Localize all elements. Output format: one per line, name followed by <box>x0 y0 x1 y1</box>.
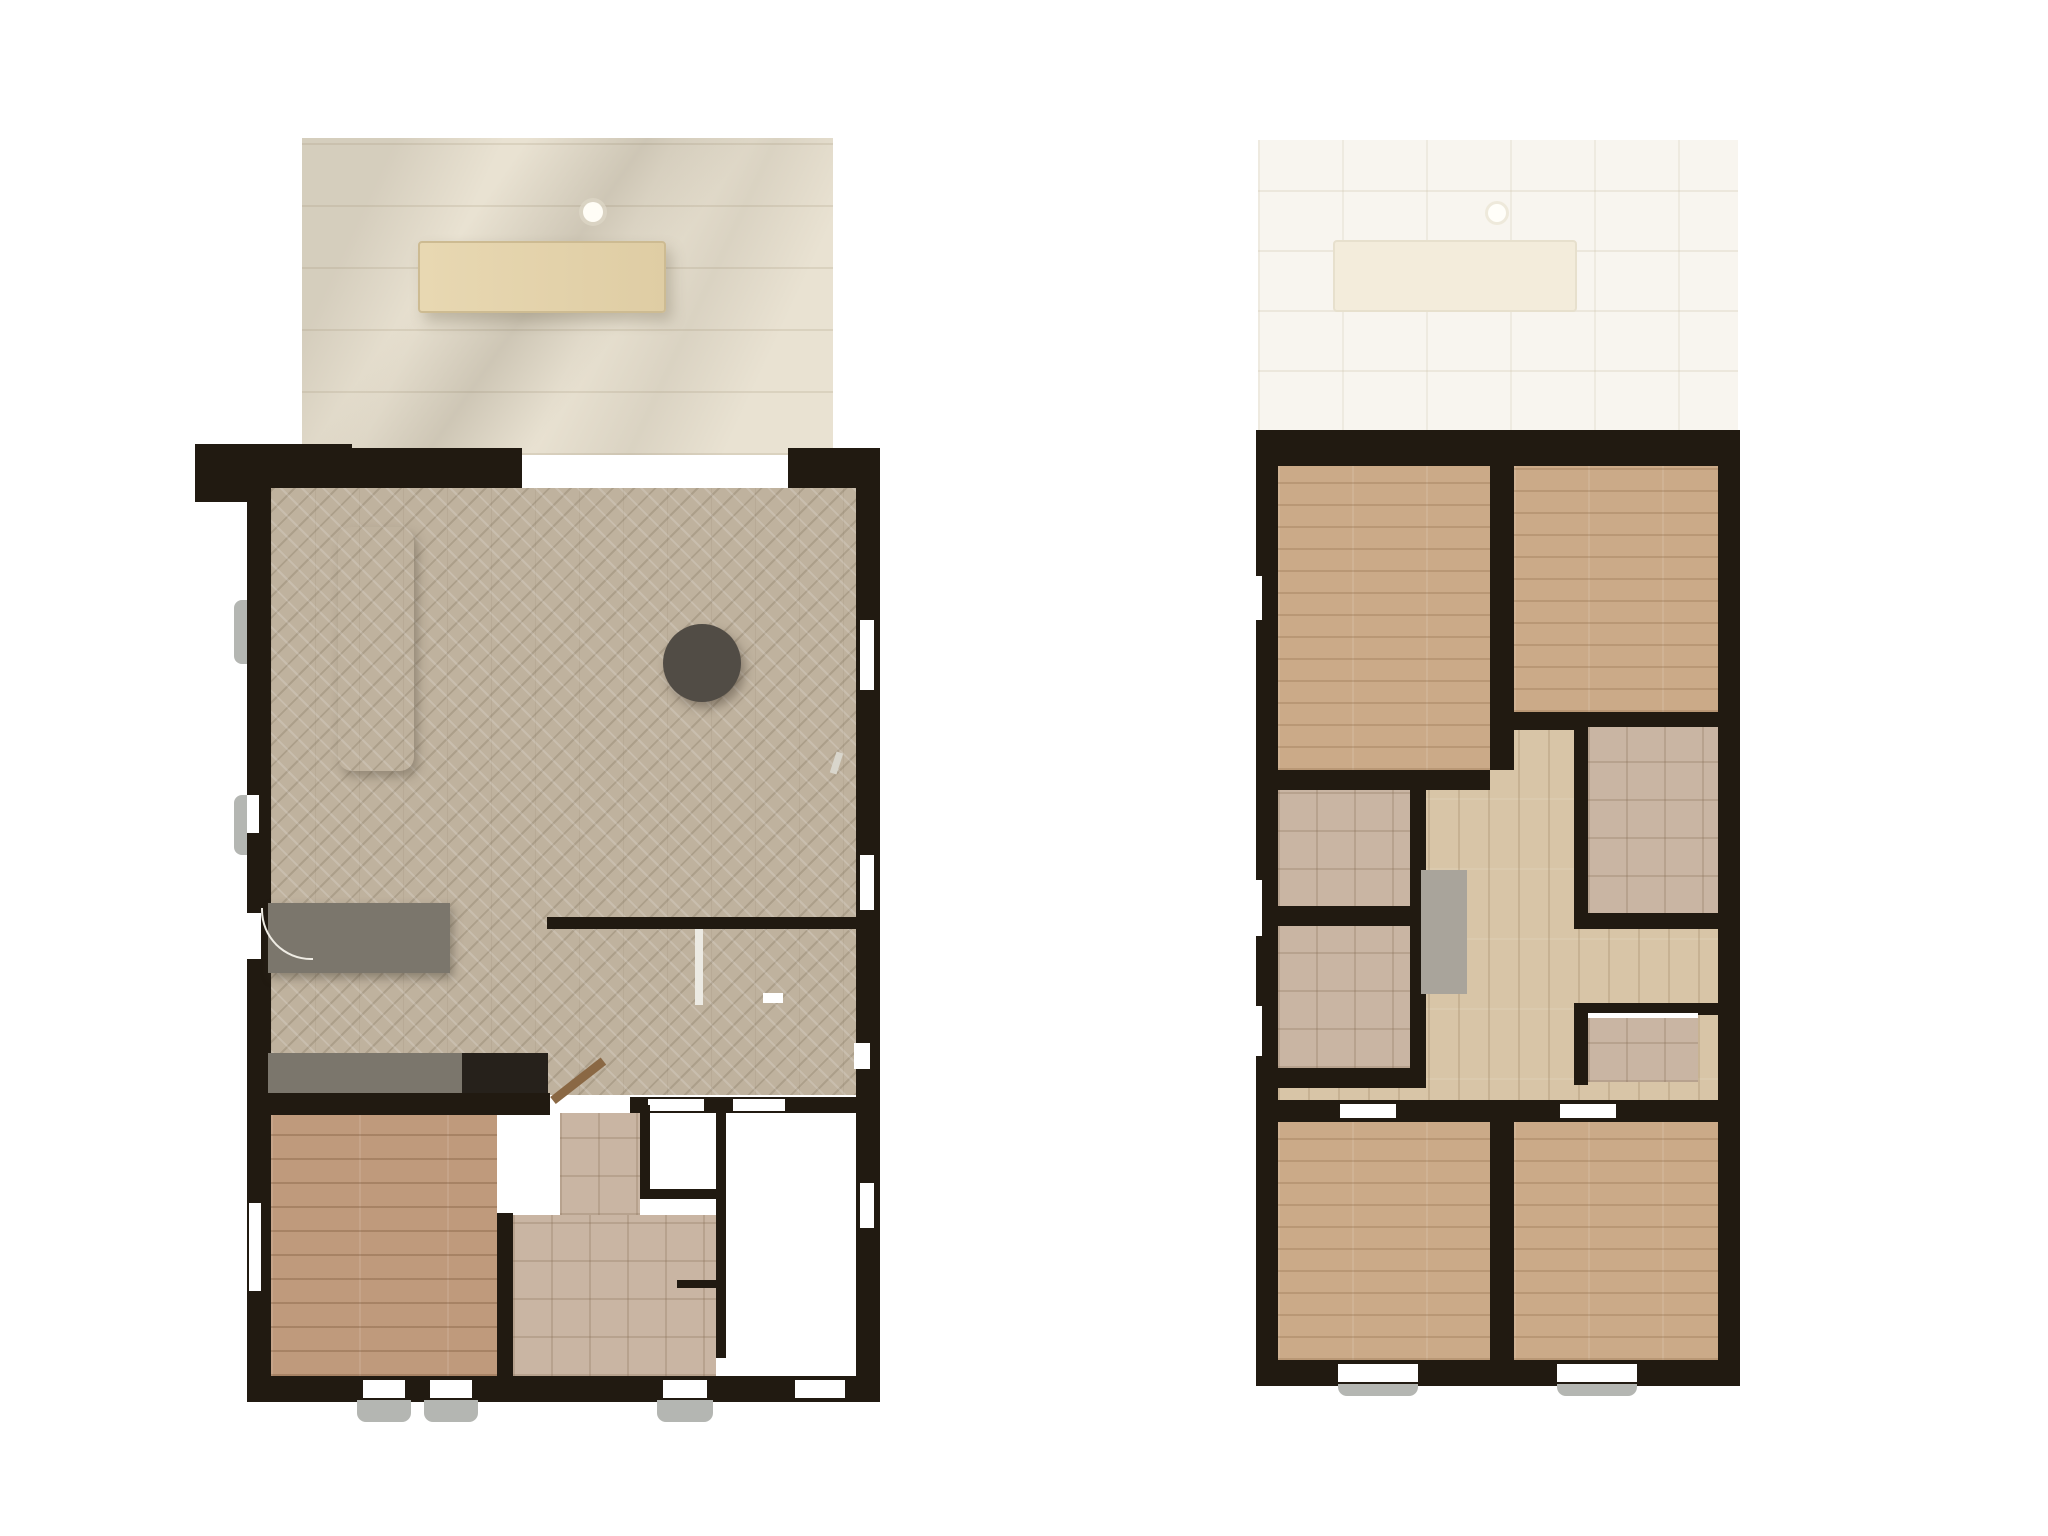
double-bed <box>281 1153 445 1310</box>
terrace-chair <box>392 255 420 307</box>
dining-chair <box>302 718 339 759</box>
window-sill <box>357 1400 411 1422</box>
bedside-books <box>275 1304 317 1343</box>
roof-slab-left <box>1126 283 1256 1422</box>
window <box>249 1203 261 1291</box>
double-washbasin <box>1592 878 1664 908</box>
door-gap <box>733 1099 785 1111</box>
wall-wet-bottom <box>1278 1068 1412 1088</box>
toilet-basin <box>1592 1052 1616 1076</box>
bed-pillow <box>1664 1169 1705 1228</box>
wall-top <box>1256 430 1740 466</box>
tv-sideboard <box>822 645 856 831</box>
bar-stool <box>393 874 425 906</box>
door-gap <box>1340 1104 1396 1118</box>
bedside-table <box>1274 1130 1310 1166</box>
bed-headboard <box>1706 509 1717 648</box>
bed-pillow <box>1294 643 1335 703</box>
cooktop-burner <box>366 932 379 945</box>
roof-door-panel <box>1509 433 1571 463</box>
bed-headboard <box>1281 565 1292 709</box>
fruit-bowl <box>362 630 390 658</box>
bed-pillow <box>1294 571 1335 631</box>
pergola-beam <box>1258 328 1738 343</box>
wall-bottom <box>247 1376 880 1402</box>
pocket-door <box>1412 806 1424 850</box>
bed-runner <box>1336 563 1361 710</box>
bed-headboard <box>1281 1171 1292 1314</box>
bar-stool <box>341 874 373 906</box>
washer <box>732 1326 774 1358</box>
wall-bottom-divider <box>1490 1122 1514 1360</box>
straight-sofa-back <box>645 899 803 916</box>
window-sill <box>1338 1384 1418 1396</box>
bed-headboard <box>281 1158 292 1306</box>
wall-bathroom-bottom <box>1574 913 1718 929</box>
pocket-door <box>1514 472 1521 550</box>
dining-chair <box>412 666 449 707</box>
toilet-glass <box>1588 1013 1698 1018</box>
wardrobe-inner <box>1421 870 1467 994</box>
dining-chair <box>302 614 339 655</box>
window <box>1557 1364 1637 1382</box>
sofa-pillow <box>546 510 583 545</box>
bedside-table <box>1284 526 1322 564</box>
window-sill <box>424 1400 478 1422</box>
parasol-hub <box>583 202 603 222</box>
window <box>860 855 874 910</box>
shower-tray <box>1284 794 1320 862</box>
wall-top-divider <box>1490 466 1514 770</box>
bedside-books <box>1276 1308 1316 1346</box>
double-bed-3 <box>1281 1166 1443 1318</box>
toilet-basin <box>694 1114 716 1138</box>
ghost-parasol-hub <box>1488 204 1506 222</box>
terrace-sliding-glass <box>510 456 792 478</box>
bed-bench <box>504 1174 568 1214</box>
double-bed-2 <box>1535 505 1717 653</box>
roof-cap-right <box>1740 268 1870 283</box>
window-sill <box>1557 1384 1637 1396</box>
window <box>795 1380 845 1398</box>
dining-chair <box>412 718 449 759</box>
toilet <box>666 1156 696 1196</box>
terrace-chair <box>420 311 468 337</box>
dryer <box>788 1326 830 1358</box>
kitchen-tall-cabinet <box>462 1053 548 1097</box>
hall-wall <box>547 917 858 929</box>
staircase <box>1583 929 1718 1003</box>
wall-toilet-vert <box>640 1105 650 1197</box>
roof-cap-left <box>1126 268 1256 283</box>
sofa-pillow <box>584 505 622 541</box>
bedside-table <box>1666 1304 1704 1340</box>
door-right <box>854 1043 870 1069</box>
plant <box>282 474 344 544</box>
sofa-pillow <box>657 874 695 899</box>
bed-runner <box>1338 1169 1364 1315</box>
window <box>860 1183 874 1228</box>
window <box>1338 1364 1418 1382</box>
dresser <box>1592 1106 1648 1144</box>
double-bed-1 <box>1281 560 1439 713</box>
wall-bottom <box>1256 1360 1740 1386</box>
window <box>663 1380 707 1398</box>
bed-runner <box>338 1156 364 1307</box>
dining-head-chair <box>352 763 398 799</box>
shower-tray <box>1284 996 1320 1060</box>
radiator-grille <box>607 926 659 948</box>
window-sill <box>234 600 247 664</box>
bathroom-anteroom-floor <box>560 1113 640 1215</box>
washbasin <box>1378 852 1406 878</box>
bed-duvet <box>1362 560 1439 713</box>
bed-pillow <box>1662 585 1704 643</box>
bed-pillow <box>294 1164 337 1225</box>
window-sill <box>657 1400 713 1422</box>
window <box>1250 880 1262 936</box>
window <box>430 1380 472 1398</box>
wall-bed1-bottom <box>1278 770 1490 790</box>
pergola-post <box>1258 182 1267 432</box>
window <box>1250 576 1262 620</box>
ghost-chair <box>1352 212 1396 238</box>
wall-right <box>856 448 880 1400</box>
staircase-marker <box>763 993 783 1003</box>
kitchen-sink <box>362 1058 398 1091</box>
wall-hung-basin <box>683 1240 709 1264</box>
bed-duvet <box>1547 1158 1636 1310</box>
utility-closet <box>820 1095 856 1183</box>
bath-washbasin <box>664 1340 704 1360</box>
bed-duvet <box>365 1153 445 1310</box>
entry-door <box>247 913 261 959</box>
roof-slab-right <box>1740 283 1870 1422</box>
cooktop-burner <box>366 950 379 963</box>
dresser <box>1348 472 1430 512</box>
bed-pillow <box>1662 515 1704 573</box>
wall-wet-divider <box>1278 906 1412 926</box>
bed-duvet <box>1364 1166 1443 1318</box>
sofa-side-table <box>601 861 637 897</box>
nightstand-books <box>1671 469 1713 510</box>
bathtub-inner <box>510 1230 552 1344</box>
window <box>247 795 259 833</box>
wall-toilet-left <box>1574 1015 1588 1085</box>
washbasin <box>1592 744 1618 768</box>
washbasin <box>1378 936 1406 962</box>
bed-pillow <box>294 1238 337 1299</box>
staircase-rail <box>695 929 703 1005</box>
bed-headboard <box>1707 1163 1719 1306</box>
corner-sofa-chaise-edge <box>523 585 537 742</box>
wall-utility-vert <box>716 1097 726 1358</box>
bath-stub-wall <box>677 1280 722 1288</box>
bed-runner <box>1636 1161 1662 1307</box>
pergola-post <box>1729 182 1738 432</box>
window <box>860 620 874 690</box>
window-sill <box>234 795 247 855</box>
shower-tray <box>600 1320 638 1358</box>
roof-door-panel <box>1423 433 1485 463</box>
floor-plans-canvas <box>0 0 2048 1536</box>
bed-duvet <box>1535 505 1633 653</box>
sofa-pillow <box>747 872 785 898</box>
dining-chair <box>302 666 339 707</box>
dining-chair <box>412 562 449 603</box>
dining-chair <box>412 614 449 655</box>
double-bed-4 <box>1547 1158 1719 1310</box>
window <box>363 1380 405 1398</box>
bed-pillow <box>1664 1240 1705 1299</box>
window <box>1250 1006 1262 1056</box>
wall-bathroom-left <box>1574 727 1588 923</box>
pocket-door <box>1483 472 1490 550</box>
terrace-chair <box>421 211 469 241</box>
bedside-table <box>1665 664 1707 706</box>
bed-pillow <box>1294 1248 1336 1307</box>
dresser <box>1572 680 1654 720</box>
chaise-pillow <box>537 694 570 740</box>
cooktop-burner <box>330 951 341 962</box>
bed-pillow <box>1294 1177 1336 1236</box>
rug <box>588 568 788 832</box>
wall-kitchen-bedroom <box>247 1093 550 1115</box>
toilet <box>1640 1026 1674 1068</box>
dining-chair <box>302 562 339 603</box>
bed-runner <box>1633 508 1660 650</box>
cooktop-burner <box>330 934 341 945</box>
bedside-books <box>1282 714 1321 750</box>
wall-right <box>1718 430 1740 1386</box>
